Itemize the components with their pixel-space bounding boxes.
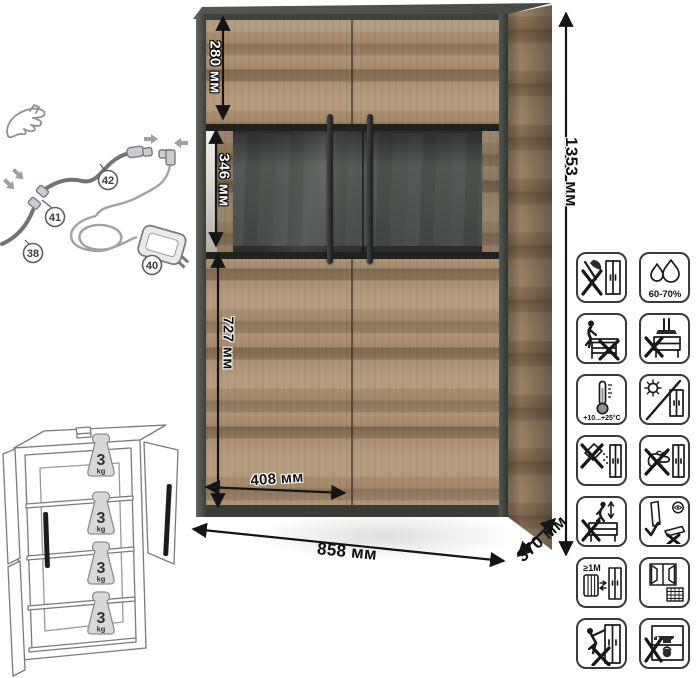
cabinet-side-panel xyxy=(508,4,552,550)
shelf-load-schematic: 3 kg 3 kg 3 kg 3 kg xyxy=(0,418,195,678)
upper-door-gap xyxy=(351,20,353,124)
weight-unit: kg xyxy=(97,575,106,584)
display-compartment xyxy=(206,131,499,252)
product-diagram: 42 41 38 40 xyxy=(0,0,700,678)
care-icon-ventilate-room xyxy=(639,557,690,608)
x-mark-icon xyxy=(646,639,661,661)
care-icon-no-jumping xyxy=(576,496,627,547)
care-icon-transport-upright xyxy=(639,496,690,547)
mesh-grid-icon xyxy=(667,588,683,601)
water-drops-icon xyxy=(651,260,679,282)
glass-reflection xyxy=(206,131,499,252)
checkmark-icon xyxy=(646,523,658,535)
thermometer-icon xyxy=(597,381,612,413)
axe-icon xyxy=(590,260,601,270)
cabinet-base xyxy=(206,505,499,517)
part-number-41: 41 xyxy=(49,212,61,224)
person-icon xyxy=(597,501,606,520)
shadow-gap-top xyxy=(206,124,499,131)
care-icon-humidity-range: 60-70% xyxy=(639,252,690,303)
cabinet-left-edge xyxy=(196,14,206,517)
cabinet-right-edge xyxy=(499,14,508,517)
distance-value: ≥1M xyxy=(583,563,600,573)
lower-door-gap xyxy=(351,259,353,505)
weight-unit: kg xyxy=(97,525,106,534)
part-number-42: 42 xyxy=(102,175,114,187)
x-mark-icon xyxy=(668,535,679,544)
x-mark-icon xyxy=(582,445,602,467)
care-icons-grid: 60-70% xyxy=(576,252,690,669)
weight-unit: kg xyxy=(97,625,106,634)
care-icon-no-scrubbing xyxy=(639,435,690,486)
care-icon-no-sitting xyxy=(576,313,627,364)
cabinet-photo xyxy=(193,2,573,577)
door-handle-right xyxy=(367,114,373,264)
angle-plug xyxy=(159,150,175,165)
care-icon-no-abrasive-cleaners xyxy=(576,435,627,486)
care-icon-no-direct-sunlight xyxy=(639,374,690,425)
dim-display-section: 346 мм xyxy=(216,153,233,206)
arrow-icon xyxy=(1,176,18,193)
glass-door-gap xyxy=(362,131,364,252)
arrow-icon xyxy=(174,138,188,148)
care-icon-temperature-range: +10...+25°C xyxy=(576,374,627,425)
part-number-38: 38 xyxy=(27,248,39,260)
care-icon-no-sharp-tools xyxy=(576,252,627,303)
door-handle-left xyxy=(327,114,333,264)
led-wiring-diagram: 42 41 38 40 xyxy=(0,98,195,283)
schematic-right-door-open xyxy=(144,442,178,564)
press-plate-icon xyxy=(656,330,677,334)
weight-unit: kg xyxy=(97,467,106,476)
part-number-40: 40 xyxy=(146,260,158,272)
care-icon-no-top-pressure xyxy=(639,313,690,364)
hand-icon xyxy=(7,105,44,137)
dim-total-height: 1353 мм xyxy=(561,137,581,207)
dim-lower-section: 727 мм xyxy=(220,316,237,369)
arrow-icon xyxy=(10,166,27,183)
care-icon-no-tipping xyxy=(576,618,627,669)
x-mark-icon xyxy=(593,648,609,665)
arrows-icon xyxy=(600,581,606,590)
cabinet-front xyxy=(196,14,508,517)
anvil-icon xyxy=(653,636,673,643)
schematic-switch-box-side xyxy=(77,433,91,438)
shadow-gap-bottom xyxy=(206,252,499,259)
humidity-value: 60-70% xyxy=(648,289,681,300)
up-down-arrow-icon xyxy=(608,502,613,518)
powder-dots xyxy=(603,453,608,464)
care-icon-no-heavy-items-inside xyxy=(639,618,690,669)
arrow-icon xyxy=(144,134,158,144)
open-window-icon xyxy=(650,564,676,585)
temperature-value: +10...+25°C xyxy=(583,414,620,422)
led-strip-cable xyxy=(2,153,130,244)
slash-icon xyxy=(647,381,680,419)
dim-top-section: 280 мм xyxy=(207,40,224,93)
care-icon-keep-distance-from-heat: ≥1M xyxy=(576,557,627,608)
